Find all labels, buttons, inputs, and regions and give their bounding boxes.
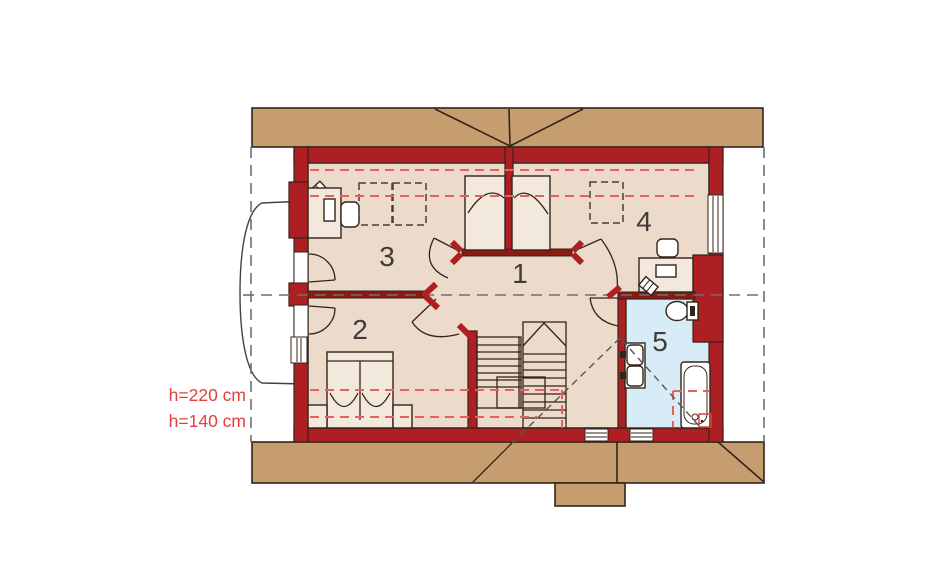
- roof-band-top: [252, 108, 763, 147]
- monitor: [324, 199, 335, 221]
- height-notes: h=220 cm h=140 cm: [169, 385, 246, 431]
- height-note-140: h=140 cm: [169, 411, 246, 431]
- chimney: [555, 483, 625, 506]
- room-label-3: 3: [379, 241, 395, 272]
- floor-plan-canvas: 1 2 3 4 5 h=220 cm h=140 cm: [0, 0, 940, 587]
- window-left: [291, 337, 307, 363]
- roof-ridge-line: [509, 109, 510, 146]
- room-label-4: 4: [636, 206, 652, 237]
- wall-stairs-room2: [468, 331, 477, 428]
- room-label-2: 2: [352, 314, 368, 345]
- wardrobe: [512, 176, 550, 250]
- roof-band-bottom: [252, 442, 764, 506]
- wall-bottom: [294, 428, 723, 442]
- room-label-5: 5: [652, 326, 668, 357]
- bathtub: [681, 362, 710, 428]
- wardrobe: [465, 176, 505, 250]
- paper: [656, 265, 676, 277]
- balcony-door-opening: [294, 252, 308, 283]
- wall-left-pier: [289, 182, 308, 238]
- floor-plan-drawing: 1 2 3 4 5 h=220 cm h=140 cm: [0, 0, 940, 587]
- roof-window-bottom-1: [585, 429, 608, 441]
- balcony-door-opening: [294, 305, 308, 337]
- chair: [341, 202, 359, 227]
- roof-window-bottom-2: [630, 429, 653, 441]
- window-right: [708, 195, 723, 253]
- height-note-220: h=220 cm: [169, 385, 246, 405]
- wall-right-block: [693, 255, 723, 342]
- chair: [657, 239, 678, 257]
- toilet: [666, 302, 698, 321]
- room-label-1: 1: [512, 258, 528, 289]
